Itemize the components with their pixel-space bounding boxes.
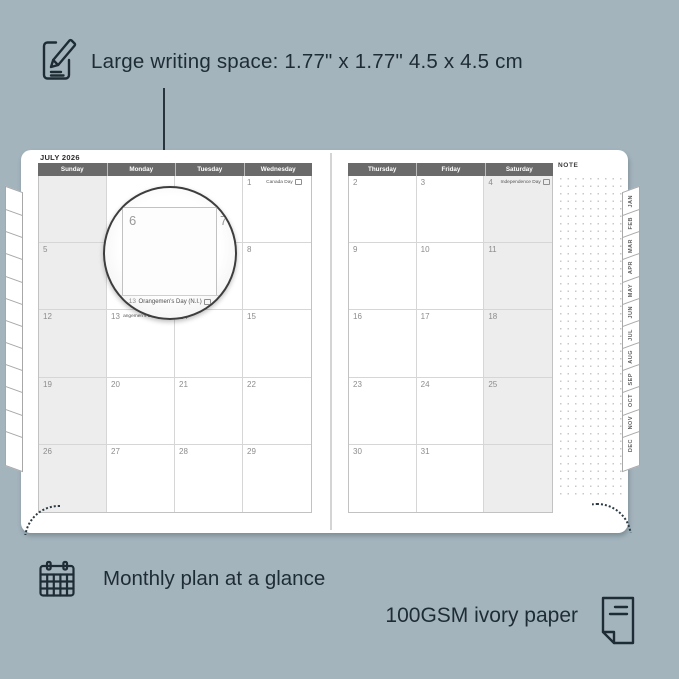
day-number: 23 [353,381,416,389]
day-number: 27 [111,448,174,456]
month-tab-label: OCT [628,394,634,407]
month-tab-label: JUN [628,306,634,319]
calendar-cell: 17 [417,310,485,377]
month-tab-label: JUL [628,329,634,341]
calendar-cell: 5 [39,243,107,310]
day-number: 9 [353,246,416,254]
magnified-holiday: 13 Orangemen's Day (N.I.) [105,298,235,305]
day-number: 18 [488,313,552,321]
month-tab-label: SEP [628,373,634,386]
magnified-footer-day: 13 [129,298,136,305]
calendar-header-row: ThursdayFridaySaturday [348,163,553,176]
calendar-cell: 14 [175,310,243,377]
writing-space-square [122,207,217,296]
magnified-row-line [105,295,235,296]
holiday-label: Canada Day [259,179,309,185]
calendar-cell: 2 [349,176,417,243]
calendar-cell: 4Independence Day [484,176,552,243]
magnified-day-6: 6 [129,213,136,228]
calendar-cell: 20 [107,378,175,445]
calendar-cell: 11 [484,243,552,310]
holiday-label: Independence Day [500,179,550,185]
page-curl-right [592,503,632,533]
calendar-cell: 24 [417,378,485,445]
weekday-header: Sunday [38,163,107,176]
day-number: 12 [43,313,106,321]
calendar-cell: 8 [243,243,311,310]
day-number: 20 [111,381,174,389]
month-tab-label: AUG [628,350,634,364]
holiday-flag-icon [543,179,550,185]
day-number: 16 [353,313,416,321]
calendar-cell: 18 [484,310,552,377]
calendar-cell: 12 [39,310,107,377]
calendar-cell: 16 [349,310,417,377]
day-number: 24 [421,381,484,389]
day-number: 31 [421,448,484,456]
day-number: 25 [488,381,552,389]
writing-space-annotation: Large writing space: 1.77" x 1.77" 4.5 x… [91,50,523,74]
spread-gutter [330,153,332,530]
calendar-cell: 1Canada Day [243,176,311,243]
page-curl-left [24,505,60,535]
calendar-cell: 9 [349,243,417,310]
calendar-cell: 10 [417,243,485,310]
calendar-cell [484,445,552,512]
magnified-holiday-label: Orangemen's Day (N.I.) [139,299,202,305]
day-number: 21 [179,381,242,389]
holiday-flag-icon [295,179,302,185]
day-number: 17 [421,313,484,321]
calendar-cell: 26 [39,445,107,512]
weekday-header: Wednesday [244,163,313,176]
calendar-cell: 21 [175,378,243,445]
day-number: 30 [353,448,416,456]
calendar-grid-icon [37,559,77,599]
note-dot-grid [555,173,625,495]
paper-sheet-icon [596,595,640,647]
note-label: NOTE [558,162,578,169]
day-number: 15 [247,313,311,321]
note-pencil-icon [38,34,80,84]
weekday-header: Friday [416,163,484,176]
holiday-flag-icon [204,299,211,305]
day-number: 22 [247,381,311,389]
weekday-header: Tuesday [175,163,244,176]
calendar-grid: 234Independence Day910111617182324253031 [348,176,553,513]
calendar-cell: 15 [243,310,311,377]
calendar-cell: 29 [243,445,311,512]
right-calendar: ThursdayFridaySaturday234Independence Da… [348,163,553,513]
monthly-plan-annotation: Monthly plan at a glance [103,567,325,591]
day-number: 19 [43,381,106,389]
day-number: 5 [43,246,106,254]
month-title: JULY 2026 [40,153,80,162]
month-tab-label: JAN [628,195,634,208]
left-month-tabs [5,186,23,473]
calendar-cell: 25 [484,378,552,445]
planner-spread: JANFEBMARAPRMAYJUNJULAUGSEPOCTNOVDEC JUL… [21,150,628,533]
month-tab-label: DEC [628,439,634,452]
day-number: 10 [421,246,484,254]
paper-annotation: 100GSM ivory paper [385,604,578,628]
calendar-cell: 27 [107,445,175,512]
magnified-day-7: 7 [220,213,227,228]
day-number: 8 [247,246,311,254]
holiday-text: Canada Day [266,180,293,185]
month-tab-label: FEB [628,217,634,230]
calendar-cell: 30 [349,445,417,512]
calendar-cell: 23 [349,378,417,445]
calendar-cell: 22 [243,378,311,445]
weekday-header: Saturday [485,163,553,176]
calendar-cell: 28 [175,445,243,512]
calendar-header-row: SundayMondayTuesdayWednesday [38,163,312,176]
calendar-cell: 31 [417,445,485,512]
magnifier-circle: 6 7 13 Orangemen's Day (N.I.) [103,186,237,320]
month-tab-label: MAY [628,284,634,297]
weekday-header: Thursday [348,163,416,176]
day-number: 3 [421,179,484,187]
month-tab-label: MAR [628,239,634,253]
holiday-text: Independence Day [501,180,541,185]
month-tab-label: APR [628,261,634,274]
calendar-cell [39,176,107,243]
month-tab-label: NOV [628,416,634,429]
day-number: 28 [179,448,242,456]
month-tab-blank [6,431,22,459]
day-number: 2 [353,179,416,187]
weekday-header: Monday [107,163,176,176]
day-number: 29 [247,448,311,456]
calendar-cell: 19 [39,378,107,445]
month-tab-dec: DEC [623,431,639,459]
calendar-cell: 3 [417,176,485,243]
day-number: 11 [488,246,552,254]
day-number: 26 [43,448,106,456]
calendar-cell: 13Orangemen's Day (N.I.) [107,310,175,377]
